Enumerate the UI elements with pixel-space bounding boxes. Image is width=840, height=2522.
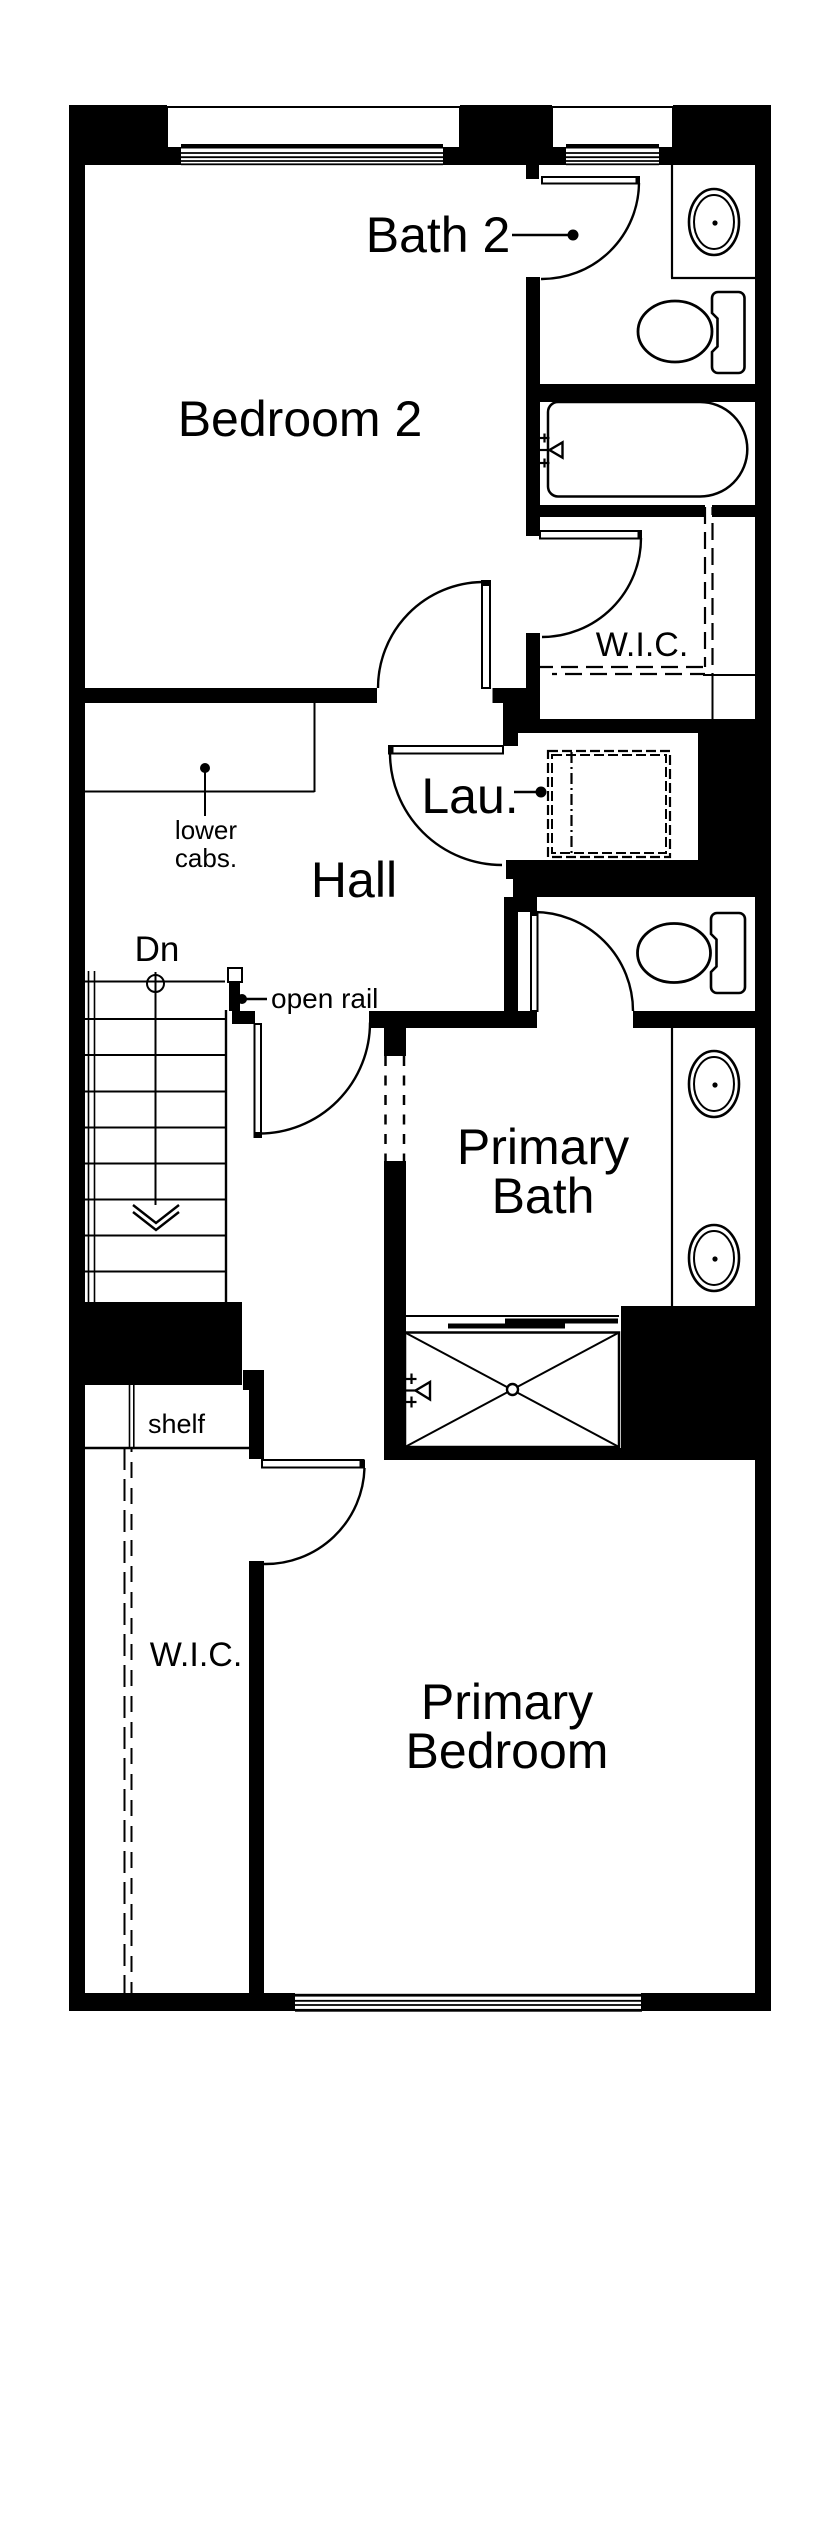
svg-text:lower: lower — [175, 815, 237, 845]
svg-text:W.I.C.: W.I.C. — [596, 626, 689, 664]
svg-text:cabs.: cabs. — [175, 843, 237, 873]
svg-text:open rail: open rail — [271, 983, 378, 1014]
svg-text:Bedroom 2: Bedroom 2 — [178, 391, 423, 447]
svg-text:Bedroom: Bedroom — [406, 1723, 609, 1779]
svg-text:Dn: Dn — [135, 930, 180, 969]
svg-text:Lau.: Lau. — [421, 768, 518, 824]
svg-text:Primary: Primary — [421, 1674, 593, 1730]
svg-text:Hall: Hall — [311, 852, 397, 908]
svg-text:Bath: Bath — [492, 1168, 595, 1224]
svg-text:shelf: shelf — [148, 1409, 206, 1439]
svg-text:Primary: Primary — [457, 1119, 629, 1175]
svg-text:Bath 2: Bath 2 — [366, 207, 511, 263]
svg-text:W.I.C.: W.I.C. — [150, 1636, 243, 1674]
